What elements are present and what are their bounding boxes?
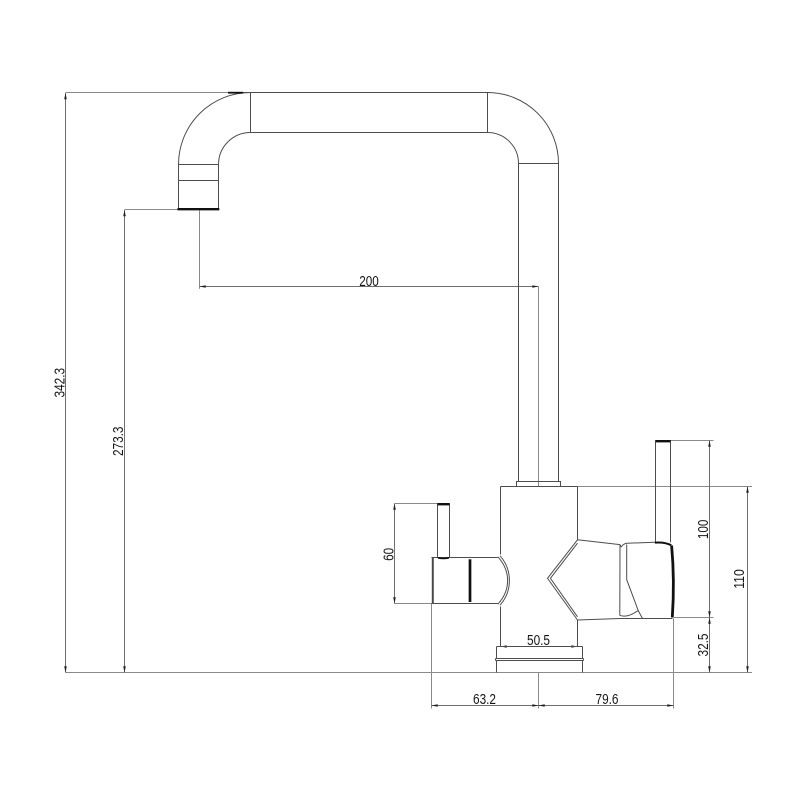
svg-text:32.5: 32.5 <box>695 634 712 657</box>
svg-text:63.2: 63.2 <box>473 691 496 708</box>
svg-text:200: 200 <box>359 273 379 290</box>
svg-text:100: 100 <box>695 520 712 540</box>
svg-text:110: 110 <box>731 569 748 589</box>
svg-text:60: 60 <box>381 548 398 561</box>
svg-text:79.6: 79.6 <box>596 691 619 708</box>
svg-text:342.3: 342.3 <box>52 368 69 398</box>
svg-text:273.3: 273.3 <box>110 427 127 457</box>
